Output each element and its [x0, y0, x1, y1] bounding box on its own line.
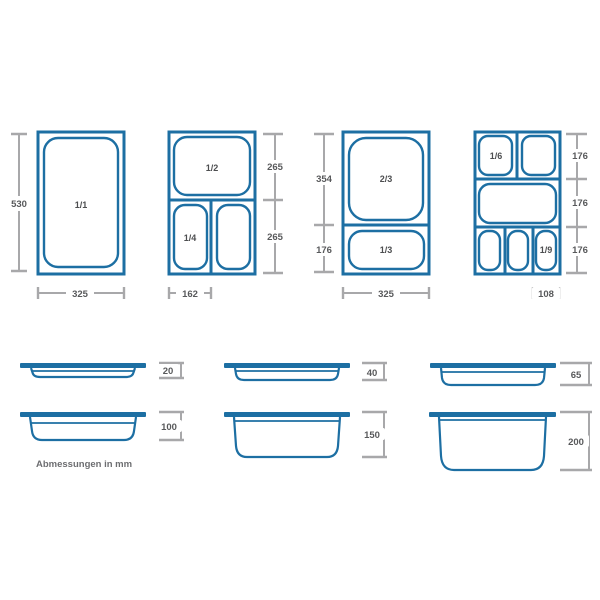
diagram-canvas: 530 1/1 325 1/2 1/4 265 265 162 [0, 0, 600, 600]
pan-rim [430, 363, 556, 368]
depth-label: 150 [364, 430, 380, 441]
pan-size-label-quarter: 1/4 [184, 233, 197, 243]
top-view-gn-1-1: 530 1/1 325 [5, 132, 124, 300]
dim-width-label: 325 [72, 289, 89, 300]
pan-size-label-two-thirds: 2/3 [380, 174, 393, 184]
dim-width-label: 162 [182, 289, 198, 300]
side-view-depth-100: 100 [20, 412, 184, 440]
pan-size-label-half: 1/2 [206, 163, 219, 173]
depth-label: 100 [161, 422, 177, 433]
depth-label: 20 [163, 366, 174, 377]
dim-row2-label: 176 [572, 198, 588, 209]
pan-size-label-sixth: 1/6 [490, 151, 503, 161]
pan-inner-quarter-right [217, 205, 250, 269]
depth-label: 40 [367, 368, 378, 379]
side-view-depth-150: 150 [224, 412, 387, 457]
pan-inner-ninth-left [479, 231, 500, 270]
top-view-gn-1-2-1-4: 1/2 1/4 265 265 162 [169, 132, 289, 300]
pan-body [30, 417, 136, 440]
pan-rim [429, 412, 556, 417]
dim-bottom-label: 176 [316, 245, 332, 256]
dim-width-label: 108 [538, 289, 554, 300]
pan-body [439, 417, 546, 470]
pan-rim [224, 363, 350, 368]
side-view-depth-200: 200 [429, 412, 592, 470]
pan-size-label-third: 1/3 [380, 245, 393, 255]
side-view-depth-40: 40 [224, 363, 387, 380]
pan-rim [224, 412, 350, 417]
side-view-depth-20: 20 [20, 363, 184, 378]
dim-row1-label: 176 [572, 151, 588, 162]
dim-row3-label: 176 [572, 245, 588, 256]
pan-rim [20, 412, 146, 417]
pan-body [235, 368, 339, 380]
pan-rim [20, 363, 146, 368]
dim-caps [263, 134, 283, 273]
top-view-gn-2-3-1-3: 354 176 2/3 1/3 325 [310, 132, 429, 300]
dim-height-label: 530 [11, 199, 27, 210]
side-view-depth-65: 65 [430, 363, 592, 385]
dim-width-label: 325 [378, 289, 395, 300]
top-view-gn-1-6-1-9: 1/6 1/9 176 176 176 108 [475, 132, 594, 300]
pan-inner-sixth-right [522, 136, 555, 175]
dim-bottom-label: 265 [267, 232, 284, 243]
dim-top-label: 265 [267, 162, 284, 173]
gastronorm-size-diagram: 530 1/1 325 1/2 1/4 265 265 162 [0, 0, 600, 600]
pan-body [441, 368, 545, 385]
depth-label: 200 [568, 437, 584, 448]
pan-size-label-ninth: 1/9 [540, 245, 553, 255]
pan-body [234, 417, 340, 457]
units-caption: Abmessungen in mm [36, 459, 132, 470]
pan-inner-ninth-middle [508, 231, 528, 270]
depth-label: 65 [571, 370, 582, 381]
dim-top-label: 354 [316, 174, 333, 185]
pan-body [31, 368, 135, 377]
pan-inner-third-wide [479, 184, 556, 223]
pan-size-label: 1/1 [75, 200, 88, 210]
